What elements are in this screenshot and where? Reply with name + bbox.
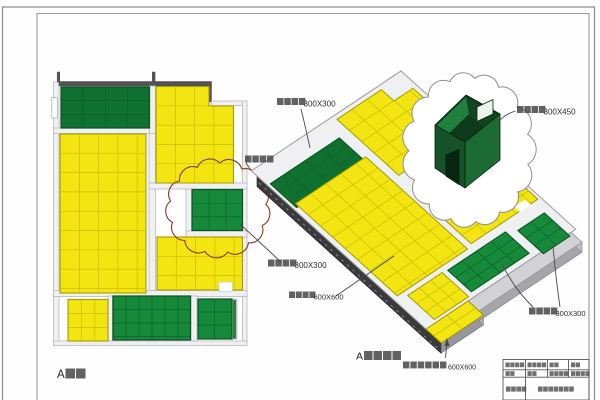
svg-text:A: A	[57, 369, 65, 381]
svg-text:600X600: 600X600	[448, 365, 476, 372]
svg-text:300X450: 300X450	[544, 108, 577, 117]
svg-text:300X300: 300X300	[295, 261, 328, 270]
svg-text:300X300: 300X300	[304, 100, 337, 109]
svg-text:A: A	[356, 351, 363, 363]
svg-text:300X300: 300X300	[556, 309, 586, 318]
svg-text:600X600: 600X600	[314, 293, 344, 302]
